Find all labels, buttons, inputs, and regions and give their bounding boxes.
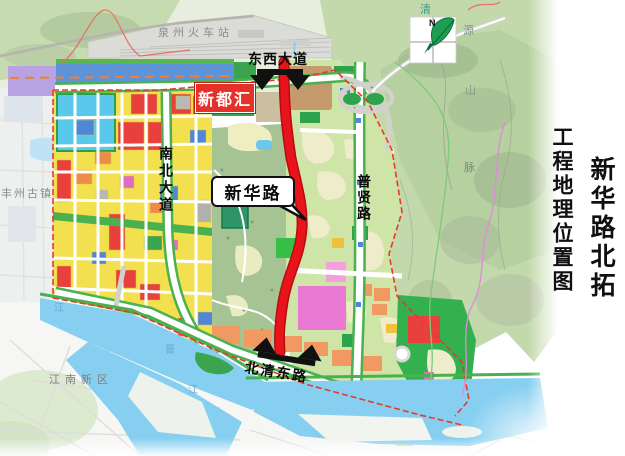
location-map-figure: 泉州火车站 东西大道 新都汇 南北大道 新华路 普贤路 北清东路 丰州古镇 江南…: [0, 0, 625, 456]
mountain-char-yuan: 源: [463, 26, 474, 37]
xinduhui-label-box: 新都汇: [195, 83, 255, 113]
xinhua-road-label: 新华路: [225, 179, 282, 204]
xinduhui-label: 新都汇: [198, 86, 252, 110]
figure-title-sub: 工程地理位置图: [551, 126, 572, 294]
fengzhou-old-town-label: 丰州古镇: [1, 189, 53, 200]
compass-n-label: N: [429, 19, 436, 28]
river-char-2: 晋: [165, 346, 175, 356]
mountain-char-shan: 山: [465, 86, 476, 97]
river-char-1: 江: [54, 304, 64, 314]
figure-title-main: 新华路北拓: [588, 156, 613, 301]
north-south-avenue-label: 南北大道: [159, 146, 173, 214]
mountain-char-qing: 清: [420, 5, 431, 16]
map-canvas: [0, 0, 625, 456]
east-west-avenue-label: 东西大道: [248, 52, 308, 66]
mountain-char-mai: 脉: [464, 163, 475, 174]
map-corner-fade: [440, 360, 560, 456]
xinhua-road-callout: 新华路: [211, 176, 295, 207]
railway-station-label: 泉州火车站: [158, 28, 233, 39]
puxian-road-label: 普贤路: [357, 174, 371, 222]
river-char-3: 江: [188, 386, 198, 396]
jiangnan-new-district-label: 江南新区: [49, 375, 113, 386]
